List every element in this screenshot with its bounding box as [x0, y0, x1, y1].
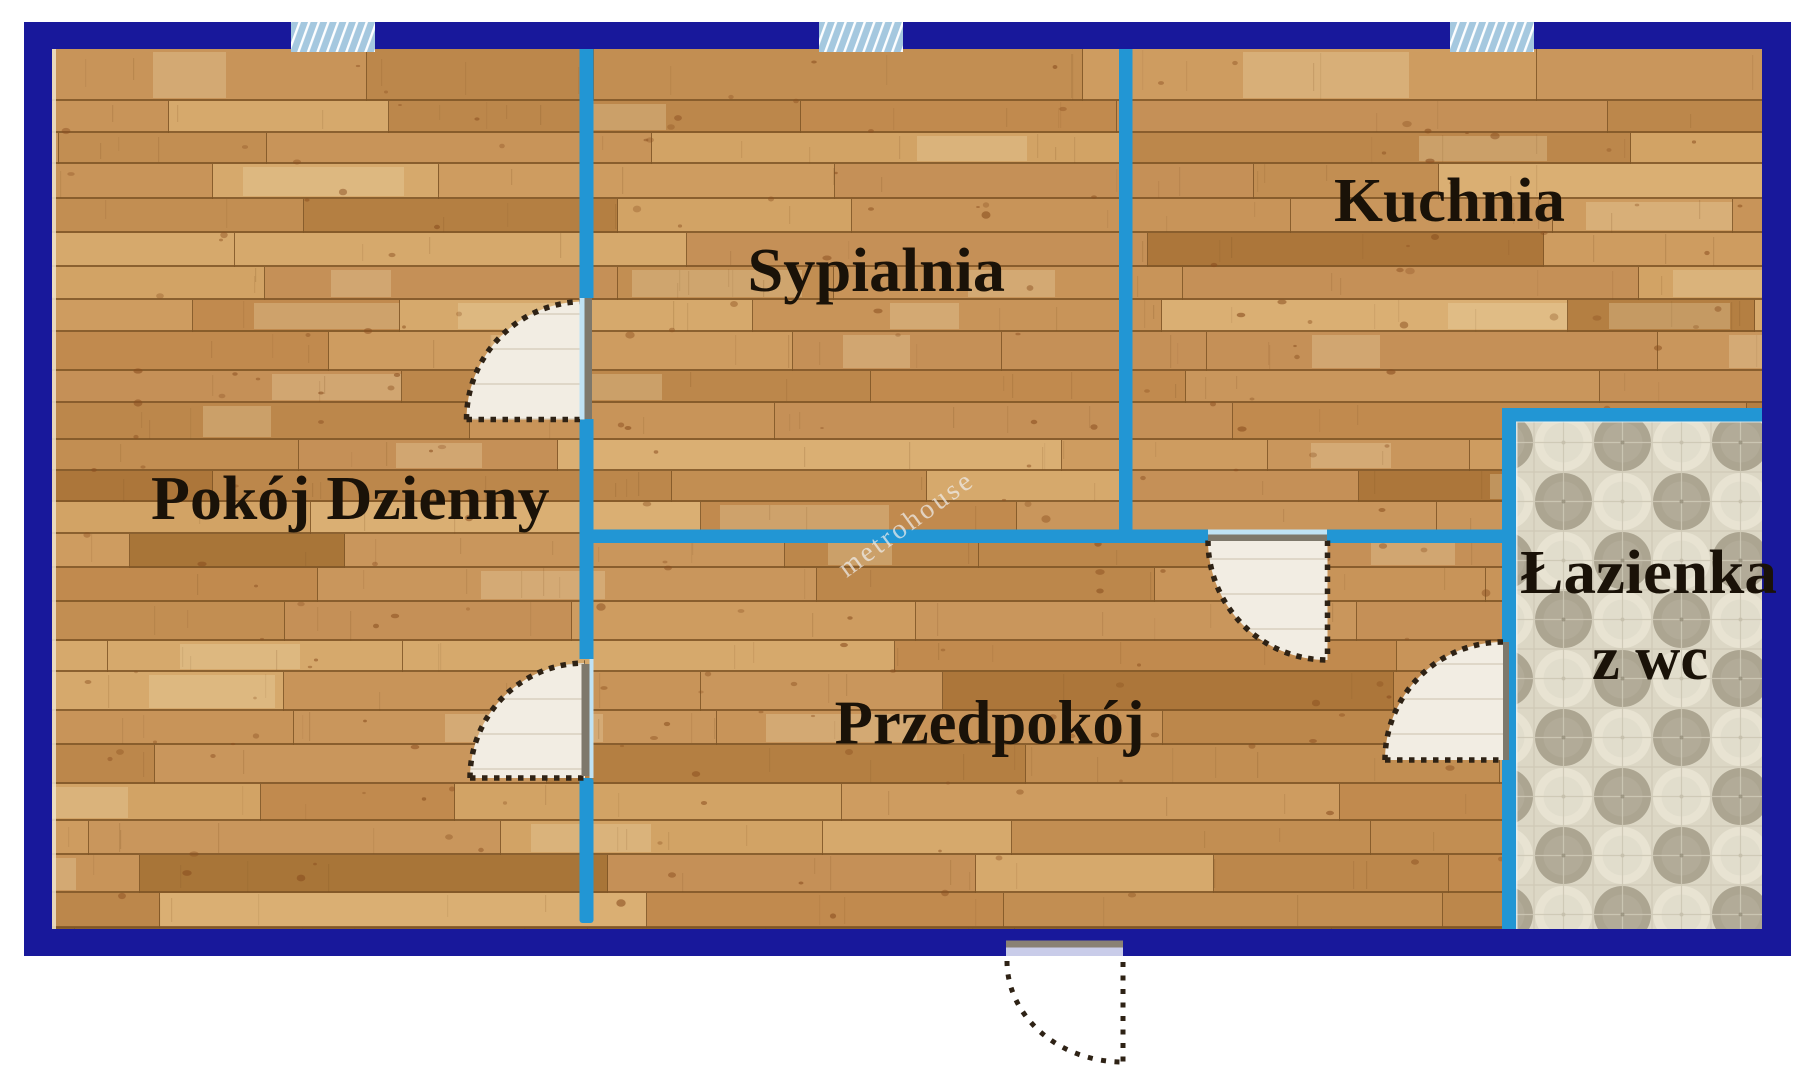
svg-text:z wc: z wc: [1592, 625, 1708, 693]
svg-text:Kuchnia: Kuchnia: [1334, 167, 1565, 235]
svg-text:Przedpokój: Przedpokój: [835, 689, 1145, 757]
svg-text:Łazienka: Łazienka: [1520, 539, 1777, 607]
svg-text:Pokój Dzienny: Pokój Dzienny: [151, 465, 550, 533]
svg-text:Sypialnia: Sypialnia: [748, 237, 1006, 305]
